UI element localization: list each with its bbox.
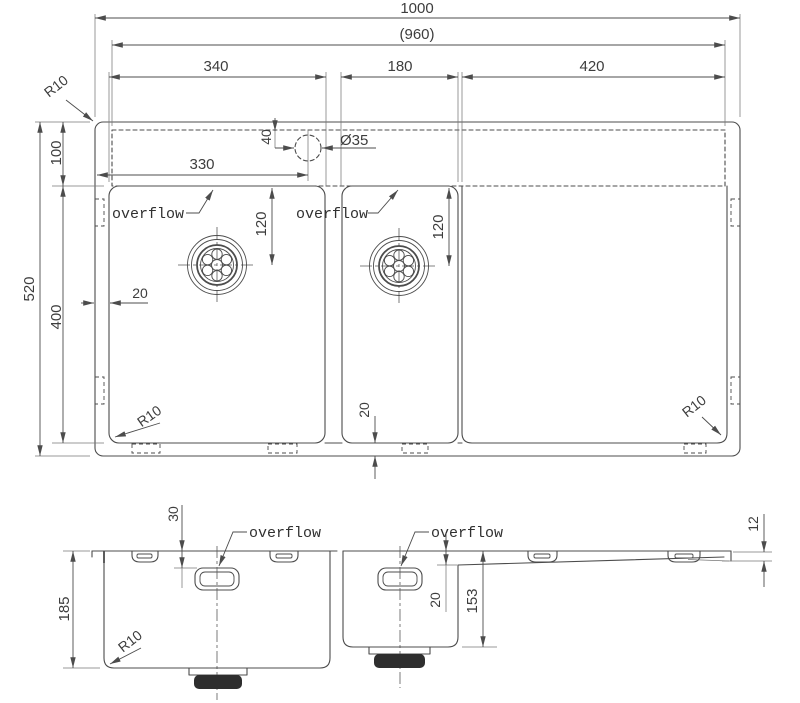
dimension-left-bowl-depth-185: 185 (56, 551, 100, 668)
overflow-label: overflow (249, 525, 321, 542)
leader-line (219, 532, 247, 566)
mounting-clips (95, 199, 740, 453)
right-drain-petal (403, 266, 413, 276)
right-drain-petal (384, 266, 394, 276)
top-view: 1000 (960) 340 180 420 R10 (21, 0, 740, 479)
clip-right-1 (731, 199, 740, 226)
technical-drawing-canvas: 1000 (960) 340 180 420 R10 (0, 0, 800, 703)
dim-text-153: 153 (464, 588, 481, 613)
sink-technical-drawing: 1000 (960) 340 180 420 R10 (0, 0, 800, 703)
clip-bottom-1 (132, 444, 160, 453)
dim-text-400: 400 (48, 304, 65, 329)
clip-profile (668, 551, 700, 562)
dim-text-330: 330 (189, 156, 214, 173)
dimension-drainboard-drop-20: 20 (427, 533, 457, 612)
clip-profile (270, 551, 298, 562)
clip-bottom-3 (402, 444, 428, 453)
radius-callout-bottom-right: R10 (679, 392, 721, 435)
dim-text-960: (960) (399, 26, 434, 43)
dimension-overflow-from-rim-30: 30 (165, 505, 197, 588)
dim-text-20-left: 20 (132, 285, 148, 301)
dimension-rear-deck-100: 100 (48, 122, 104, 186)
left-drain (178, 227, 256, 303)
overflow-callout-left-plan: overflow (112, 190, 213, 223)
dim-text-1000: 1000 (400, 0, 433, 17)
clip-profile (528, 551, 557, 562)
overflow-label: overflow (296, 206, 368, 223)
dimension-bowl-length-400: 400 (48, 186, 104, 443)
clip-slot (276, 554, 292, 558)
dim-text-520: 520 (21, 276, 38, 301)
radius-callout-top-left: R10 (41, 72, 93, 121)
radius-text-r10-bottom-right: R10 (679, 392, 709, 421)
right-drain-boss (369, 647, 430, 668)
boss-body (194, 675, 242, 689)
dim-text-20-bottom: 20 (356, 402, 372, 418)
dim-text-30: 30 (165, 506, 181, 522)
overflow-callout-right-section: overflow (401, 525, 503, 566)
clip-right-2 (731, 377, 740, 404)
overflow-callout-left-section: overflow (219, 525, 321, 566)
clip-slot (137, 554, 152, 558)
overflow-callout-right-plan: overflow (296, 190, 398, 223)
leader-line (702, 417, 721, 435)
leader-line (368, 190, 398, 213)
radius-callout-bottom-left: R10 (115, 402, 164, 437)
dim-text-dia35: Ø35 (340, 132, 368, 149)
dimension-rim-gap-left-20: 20 (81, 285, 148, 303)
dim-text-120-left: 120 (253, 211, 270, 236)
dim-text-340: 340 (203, 58, 228, 75)
dim-text-185: 185 (56, 596, 73, 621)
left-drain-petal (221, 265, 231, 275)
dimension-overall-depth-520: 520 (21, 122, 90, 456)
clip-bottom-2 (268, 444, 297, 453)
clip-left-1 (95, 199, 104, 226)
dim-text-420: 420 (579, 58, 604, 75)
left-bowl-outline (109, 186, 325, 443)
dimension-right-drain-120: 120 (430, 188, 449, 266)
clip-slot (675, 554, 693, 558)
right-drain-petal (403, 255, 413, 265)
dim-text-20-side: 20 (427, 592, 443, 608)
clip-slot (534, 554, 550, 558)
radius-callout-side-bowl: R10 (110, 627, 145, 664)
overflow-label: overflow (112, 206, 184, 223)
left-drain-boss (189, 668, 247, 689)
dimension-left-drain-120: 120 (253, 188, 272, 265)
overflow-label: overflow (431, 525, 503, 542)
callout-tap-diameter: Ø35 (322, 132, 376, 149)
dimension-overall-width-1000: 1000 (95, 0, 740, 117)
leader-line (66, 100, 93, 121)
leader-line (186, 190, 213, 213)
dimension-drainboard-420: 420 (462, 58, 725, 77)
dim-text-40: 40 (258, 129, 274, 145)
dimension-right-bowl-depth-153: 153 (462, 551, 497, 647)
dim-text-120-right: 120 (430, 214, 447, 239)
radius-text-r10-side: R10 (115, 627, 145, 656)
left-drain-petal (202, 265, 212, 275)
left-drain-petal (202, 254, 212, 264)
boss-body (374, 654, 425, 668)
dimension-rim-gap-bottom-20: 20 (356, 402, 375, 479)
left-drain-petal (221, 254, 231, 264)
dimension-right-bowl-180: 180 (341, 58, 462, 182)
leader-line (401, 532, 429, 566)
dim-text-100: 100 (48, 140, 65, 165)
dim-text-12: 12 (745, 516, 761, 532)
dim-text-180: 180 (387, 58, 412, 75)
radius-text-r10-bottom-left: R10 (134, 402, 164, 430)
right-drain (360, 228, 438, 304)
clip-profile (132, 551, 158, 562)
clip-left-2 (95, 377, 104, 404)
boss-flange (189, 668, 247, 675)
dimension-inner-width-960: (960) (112, 26, 725, 126)
right-drain-petal (384, 255, 394, 265)
leader-line (115, 423, 160, 437)
clip-bottom-4 (684, 444, 706, 453)
dimension-tap-from-left-330: 330 (97, 156, 308, 175)
radius-text-r10-top-left: R10 (41, 72, 71, 101)
side-view: 185 30 overflow overflow R10 20 (56, 505, 772, 700)
boss-flange (369, 647, 430, 654)
